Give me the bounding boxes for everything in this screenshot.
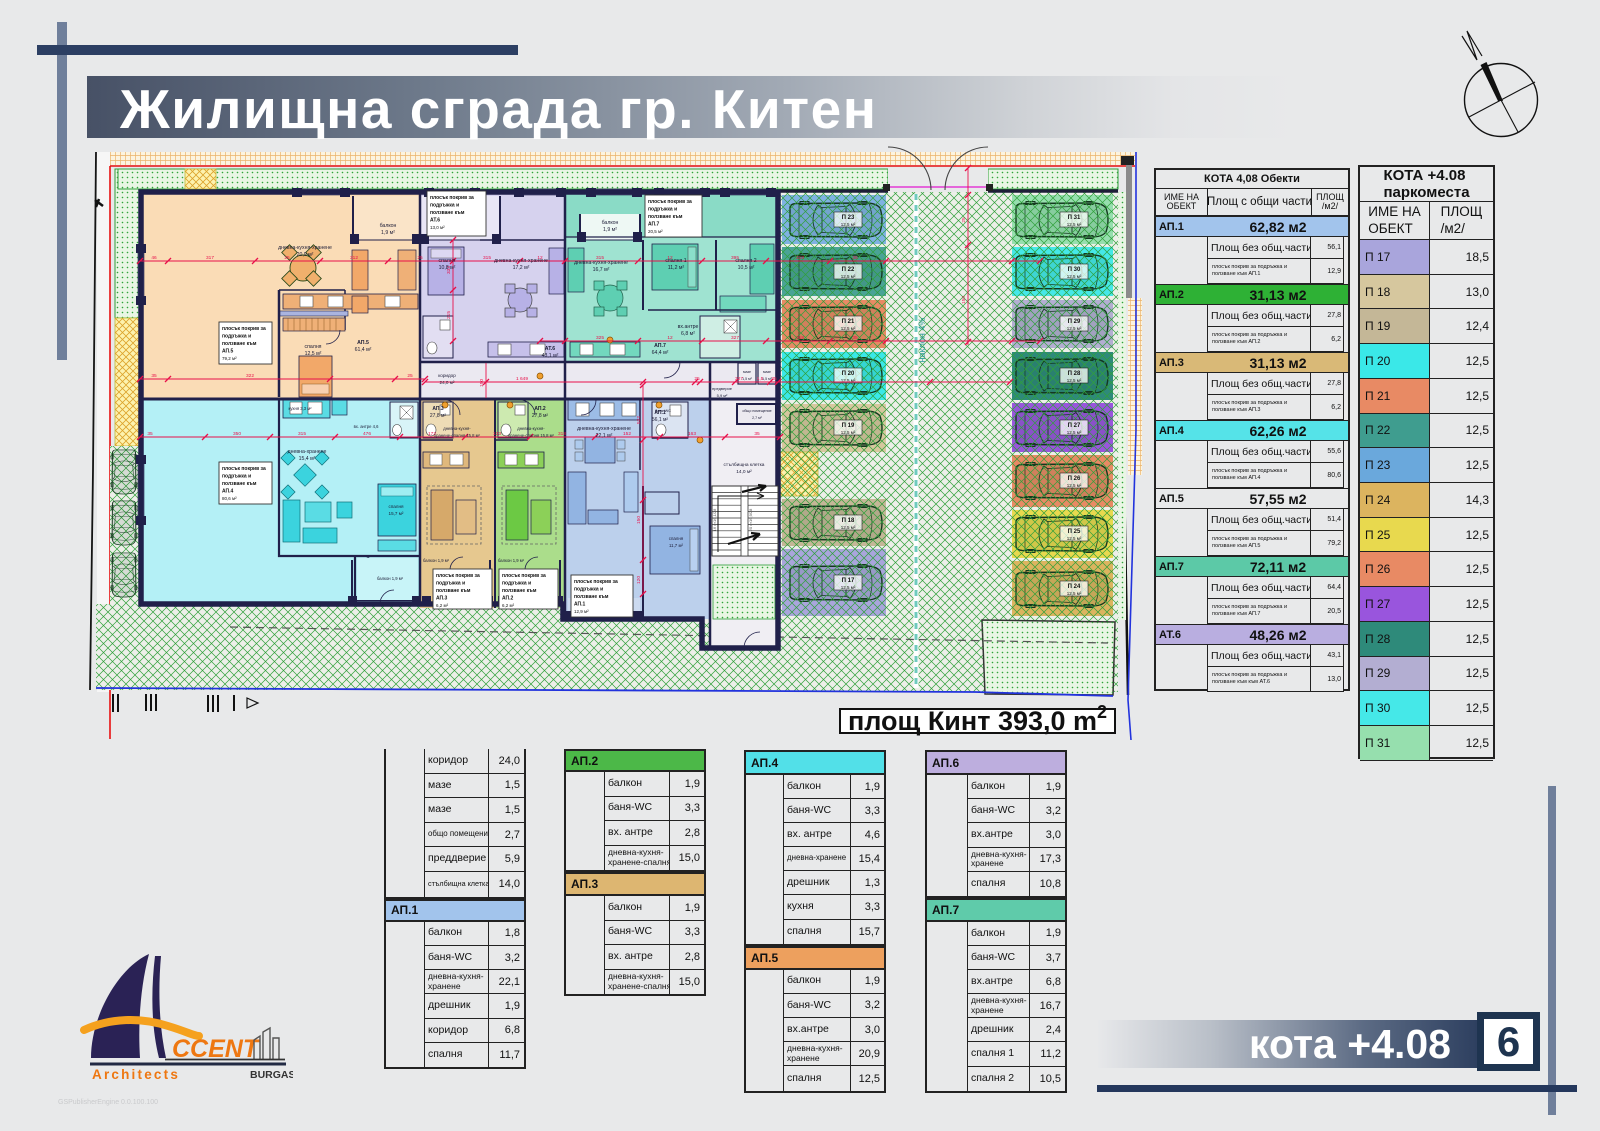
- svg-text:балкон 1,9 м²: балкон 1,9 м²: [377, 576, 404, 581]
- svg-text:12,9 м²: 12,9 м²: [574, 609, 589, 614]
- svg-text:плосък покрив за: плосък покрив за: [502, 573, 546, 579]
- svg-text:25: 25: [284, 255, 290, 261]
- svg-text:П 28: П 28: [1068, 371, 1081, 377]
- svg-text:АП.3: АП.3: [436, 596, 448, 602]
- svg-text:подръжка и: подръжка и: [430, 203, 459, 209]
- svg-text:12,5 м²: 12,5 м²: [841, 222, 856, 227]
- svg-text:АТ.6: АТ.6: [545, 346, 556, 352]
- svg-text:14,0 м²: 14,0 м²: [736, 469, 752, 475]
- svg-text:15,7 м²: 15,7 м²: [389, 511, 404, 516]
- svg-text:2,7 м²: 2,7 м²: [752, 416, 762, 420]
- svg-text:АП.5: АП.5: [357, 340, 369, 346]
- svg-text:64,4 м²: 64,4 м²: [652, 350, 669, 356]
- svg-text:ползване към: ползване към: [502, 588, 537, 594]
- svg-text:46: 46: [151, 255, 157, 261]
- svg-text:подръжка и: подръжка и: [222, 334, 251, 340]
- svg-text:кухня 3,3 м²: кухня 3,3 м²: [288, 406, 312, 411]
- svg-text:АП.5: АП.5: [222, 349, 234, 355]
- svg-text:80,6 м²: 80,6 м²: [222, 496, 237, 501]
- svg-text:1,9 м²: 1,9 м²: [381, 230, 395, 236]
- svg-text:наклон 4%: наклон 4%: [917, 318, 927, 363]
- svg-text:133: 133: [493, 431, 501, 437]
- svg-text:315: 315: [298, 431, 306, 437]
- svg-text:25: 25: [694, 376, 700, 382]
- svg-text:П 29: П 29: [1068, 319, 1081, 325]
- svg-text:327: 327: [731, 335, 739, 341]
- svg-text:П 30: П 30: [1068, 267, 1081, 273]
- svg-text:35: 35: [151, 373, 157, 379]
- svg-text:35: 35: [852, 335, 858, 341]
- svg-text:12,5 м²: 12,5 м²: [841, 585, 856, 590]
- svg-text:АП.4: АП.4: [222, 489, 234, 495]
- svg-text:спалня: спалня: [388, 504, 404, 509]
- svg-text:предверие: предверие: [712, 386, 733, 391]
- svg-text:12,5 м²: 12,5 м²: [841, 326, 856, 331]
- svg-text:20,9 м²: 20,9 м²: [297, 252, 314, 258]
- svg-text:П 27: П 27: [1068, 423, 1081, 429]
- svg-text:ползване към: ползване към: [430, 210, 465, 216]
- svg-text:дневна-кухня-: дневна-кухня-: [517, 426, 545, 431]
- svg-text:АТ.6: АТ.6: [430, 218, 440, 224]
- svg-text:мазе: мазе: [763, 370, 771, 374]
- svg-text:317: 317: [206, 255, 214, 261]
- svg-text:17,2 м²: 17,2 м²: [513, 265, 530, 271]
- svg-text:Architects: Architects: [92, 1067, 180, 1082]
- svg-text:1,5 м²: 1,5 м²: [762, 377, 772, 381]
- svg-text:коридор: коридор: [438, 373, 456, 378]
- svg-text:балкон: балкон: [380, 223, 397, 229]
- svg-text:35: 35: [852, 255, 858, 261]
- svg-text:вх. антре 4,6: вх. антре 4,6: [354, 424, 380, 429]
- svg-text:П 22: П 22: [842, 267, 855, 273]
- svg-text:спалня 2: спалня 2: [735, 258, 756, 264]
- svg-text:1 649: 1 649: [516, 376, 528, 382]
- svg-text:6,2 м²: 6,2 м²: [502, 603, 515, 608]
- svg-text:АП.2: АП.2: [502, 596, 514, 602]
- svg-text:25: 25: [417, 255, 423, 261]
- svg-text:476: 476: [363, 431, 371, 437]
- svg-text:150: 150: [961, 296, 967, 304]
- svg-text:балкон: балкон: [602, 220, 619, 226]
- svg-text:дневна-кухня-хранене: дневна-кухня-хранене: [278, 245, 332, 251]
- svg-text:16,7 м²: 16,7 м²: [593, 267, 610, 273]
- svg-text:подръжка и: подръжка и: [648, 207, 677, 213]
- svg-text:плосък покрив за: плосък покрив за: [222, 326, 266, 332]
- svg-text:325: 325: [596, 335, 604, 341]
- svg-text:АП.2: АП.2: [534, 406, 546, 412]
- svg-text:522: 522: [636, 416, 642, 424]
- svg-text:318: 318: [558, 431, 566, 437]
- svg-text:баня-WC: баня-WC: [655, 409, 671, 413]
- svg-text:12,5 м²: 12,5 м²: [1067, 274, 1082, 279]
- svg-text:12,5 м²: 12,5 м²: [1067, 536, 1082, 541]
- svg-text:20,5 м²: 20,5 м²: [648, 229, 663, 234]
- svg-text:ползване към: ползване към: [222, 341, 257, 347]
- svg-text:12,5 м²: 12,5 м²: [1067, 378, 1082, 383]
- svg-text:12,5 м²: 12,5 м²: [1067, 430, 1082, 435]
- svg-text:спалня: спалня: [439, 258, 456, 264]
- svg-text:АП.7: АП.7: [648, 222, 660, 228]
- svg-text:ползване към: ползване към: [436, 588, 471, 594]
- svg-text:1,9 м²: 1,9 м²: [603, 227, 617, 233]
- svg-text:хранене-спалня 15,8 м²: хранене-спалня 15,8 м²: [508, 433, 554, 438]
- svg-text:35: 35: [771, 376, 777, 382]
- svg-text:ползване към: ползване към: [222, 481, 257, 487]
- svg-text:АП.7: АП.7: [654, 343, 666, 349]
- svg-text:61,4 м²: 61,4 м²: [355, 347, 372, 353]
- svg-text:25: 25: [407, 373, 413, 379]
- svg-text:подръжка и: подръжка и: [502, 581, 531, 587]
- svg-text:312: 312: [350, 255, 358, 261]
- svg-text:350: 350: [233, 431, 241, 437]
- svg-text:11,2 м²: 11,2 м²: [668, 265, 685, 271]
- svg-text:6,8 м²: 6,8 м²: [681, 331, 695, 337]
- svg-text:вх.антре: вх.антре: [678, 324, 699, 330]
- svg-text:П 20: П 20: [842, 371, 855, 377]
- svg-text:ползване към: ползване към: [574, 594, 609, 600]
- svg-text:П 18: П 18: [842, 518, 855, 524]
- svg-text:хранене-спалня 15,8 м²: хранене-спалня 15,8 м²: [434, 433, 480, 438]
- svg-text:общо помещение: общо помещение: [742, 409, 771, 413]
- svg-text:12,5 м²: 12,5 м²: [841, 525, 856, 530]
- svg-text:подръжка и: подръжка и: [574, 587, 603, 593]
- svg-text:спалня: спалня: [669, 536, 684, 541]
- svg-text:12,5 м²: 12,5 м²: [1067, 326, 1082, 331]
- svg-text:дневна-кухня-хранене: дневна-кухня-хранене: [574, 260, 628, 266]
- svg-text:10,5 м²: 10,5 м²: [738, 265, 755, 271]
- svg-text:П 26: П 26: [1068, 476, 1081, 482]
- svg-text:318: 318: [796, 255, 804, 261]
- svg-text:22,1 м²: 22,1 м²: [596, 433, 613, 439]
- svg-text:12,5 м²: 12,5 м²: [305, 351, 322, 357]
- svg-text:П 24: П 24: [1068, 584, 1081, 590]
- svg-text:плосък покрив за: плосък покрив за: [648, 199, 692, 205]
- svg-text:35: 35: [754, 431, 760, 437]
- svg-text:322: 322: [246, 373, 254, 379]
- svg-text:6,2 м²: 6,2 м²: [436, 603, 449, 608]
- svg-text:215: 215: [446, 311, 452, 319]
- svg-text:12: 12: [667, 335, 673, 341]
- svg-text:150: 150: [479, 379, 485, 387]
- svg-text:балкон 1,9 м²: балкон 1,9 м²: [423, 558, 450, 563]
- svg-text:10,8 м²: 10,8 м²: [439, 265, 456, 271]
- svg-text:16 ст16,1/28: 16 ст16,1/28: [712, 508, 717, 532]
- svg-text:П 19: П 19: [842, 423, 855, 429]
- svg-text:плосък покрив за: плосък покрив за: [436, 573, 480, 579]
- svg-text:дневна-хранене: дневна-хранене: [288, 449, 327, 455]
- svg-text:балкон 1,9 м²: балкон 1,9 м²: [498, 558, 525, 563]
- svg-text:дневна-кухня-хранене: дневна-кухня-хранене: [494, 258, 548, 264]
- svg-text:П 23: П 23: [842, 215, 855, 221]
- svg-text:дневна-кухня-: дневна-кухня-: [443, 426, 471, 431]
- svg-text:спалня 1: спалня 1: [665, 258, 686, 264]
- svg-text:43,1 м²: 43,1 м²: [542, 353, 559, 359]
- svg-text:56,1 м²: 56,1 м²: [652, 417, 669, 423]
- svg-text:12,5 м²: 12,5 м²: [1067, 222, 1082, 227]
- svg-text:79,2 м²: 79,2 м²: [222, 356, 237, 361]
- svg-text:П 21: П 21: [842, 319, 855, 325]
- svg-text:АП.3: АП.3: [432, 406, 444, 412]
- svg-text:24,0 м²: 24,0 м²: [440, 380, 455, 385]
- svg-text:120: 120: [636, 576, 642, 584]
- svg-text:подръжка и: подръжка и: [222, 474, 251, 480]
- svg-text:спалня: спалня: [305, 344, 322, 350]
- svg-text:150: 150: [636, 516, 642, 524]
- svg-text:20 ст16,9/28: 20 ст16,9/28: [748, 508, 753, 532]
- svg-text:плосък покрив за: плосък покрив за: [574, 579, 618, 585]
- svg-text:11,7 м²: 11,7 м²: [669, 543, 683, 548]
- svg-text:163: 163: [688, 431, 696, 437]
- svg-text:25: 25: [961, 217, 967, 223]
- svg-text:П 25: П 25: [1068, 529, 1081, 535]
- svg-text:12,5 м²: 12,5 м²: [841, 430, 856, 435]
- svg-text:АП.1: АП.1: [574, 602, 586, 608]
- svg-text:плосък покрив за: плосък покрив за: [430, 195, 474, 201]
- svg-text:П 17: П 17: [842, 578, 855, 584]
- svg-text:дневна-кухня-хранене: дневна-кухня-хранене: [577, 426, 631, 432]
- svg-text:12,5 м²: 12,5 м²: [1067, 591, 1082, 596]
- svg-text:13,0 м²: 13,0 м²: [430, 225, 445, 230]
- svg-text:35: 35: [147, 431, 153, 437]
- svg-text:27,8 м²: 27,8 м²: [532, 413, 549, 419]
- svg-text:подръжка и: подръжка и: [436, 581, 465, 587]
- svg-text:12,5 м²: 12,5 м²: [1067, 483, 1082, 488]
- svg-text:315: 315: [483, 255, 491, 261]
- svg-text:плосък покрив за: плосък покрив за: [222, 466, 266, 472]
- svg-text:27,8 м²: 27,8 м²: [430, 413, 447, 419]
- svg-text:ползване към: ползване към: [648, 214, 683, 220]
- svg-text:12,5 м²: 12,5 м²: [841, 274, 856, 279]
- svg-text:BURGAS: BURGAS: [250, 1069, 293, 1081]
- svg-text:мазе: мазе: [743, 370, 751, 374]
- svg-text:стълбищна клетка: стълбищна клетка: [724, 462, 765, 468]
- svg-text:5,9 м²: 5,9 м²: [717, 393, 728, 398]
- svg-text:1,5 м²: 1,5 м²: [742, 377, 752, 381]
- svg-text:15,4 м²: 15,4 м²: [299, 456, 316, 462]
- svg-text:П 31: П 31: [1068, 215, 1081, 221]
- svg-text:318: 318: [796, 335, 804, 341]
